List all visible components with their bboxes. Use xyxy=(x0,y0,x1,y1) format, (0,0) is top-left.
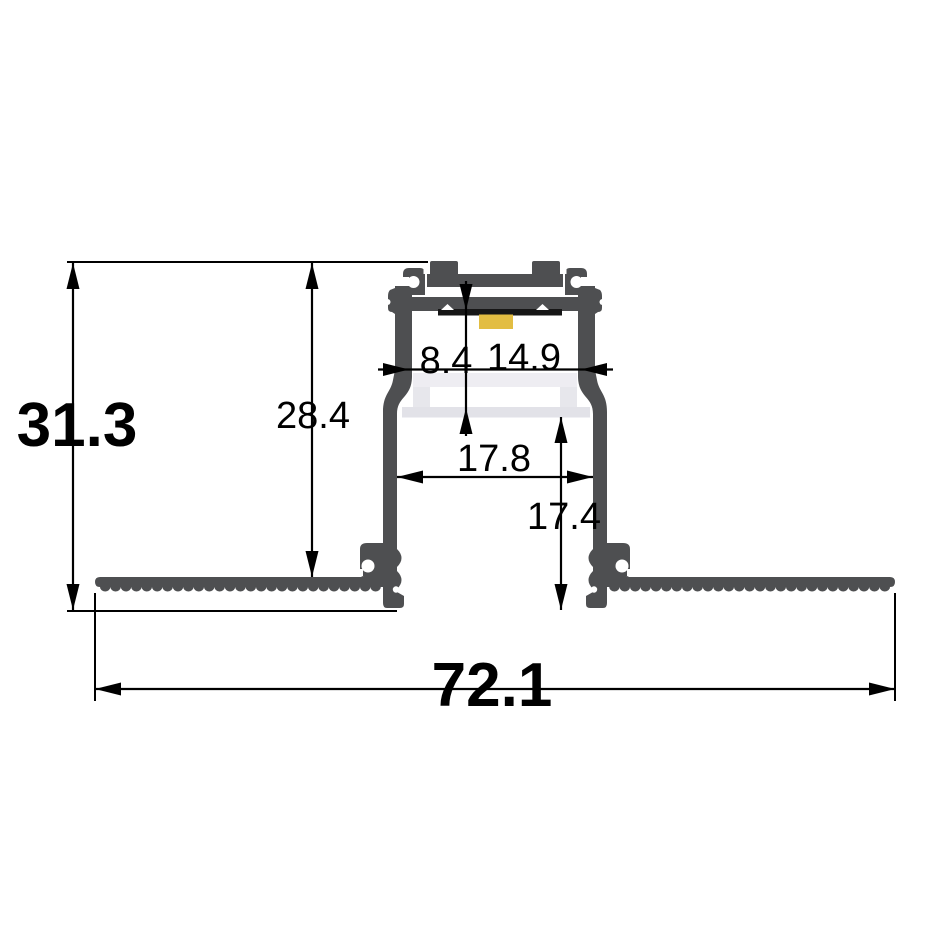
profile-ceiling-slab xyxy=(396,297,594,311)
foot-notch xyxy=(393,586,399,592)
dim-top-opening: 14.9 xyxy=(378,337,613,379)
flange-hook xyxy=(360,543,383,577)
dim-inner-width: 17.8 xyxy=(397,438,593,484)
dim-overall-width: 72.1 xyxy=(95,593,895,720)
outer-ear-notch xyxy=(385,299,391,305)
flange-hook-hole xyxy=(362,560,375,573)
dim-overall-height-label: 31.3 xyxy=(17,391,138,460)
dim-mounting-height-label: 28.4 xyxy=(276,395,350,437)
arrow-left xyxy=(95,683,121,696)
technical-drawing-canvas: 31.3 28.4 8.4 14.9 17.8 xyxy=(0,0,930,930)
dim-mounting-height: 28.4 xyxy=(276,263,350,577)
dim-inner-width-label: 17.8 xyxy=(457,438,531,480)
arrow-down xyxy=(555,584,568,610)
mounting-tab xyxy=(430,261,458,280)
arrow-right xyxy=(869,683,895,696)
flange-hook-opening xyxy=(356,569,363,576)
arrow-up xyxy=(67,263,80,289)
dim-overall-width-label: 72.1 xyxy=(432,651,553,720)
arrow-left xyxy=(397,471,423,484)
dim-recess-depth-label: 17.4 xyxy=(527,496,601,538)
arrow-down xyxy=(306,551,319,577)
diffuser-bottom-plate xyxy=(402,407,590,418)
dim-top-opening-label: 14.9 xyxy=(487,337,561,379)
dimensions: 31.3 28.4 8.4 14.9 17.8 xyxy=(17,262,895,720)
arrow-up xyxy=(306,263,319,289)
arrow-right xyxy=(567,471,593,484)
led-chip xyxy=(479,315,513,330)
dim-led-gap-label: 8.4 xyxy=(420,340,473,382)
profile-right-half xyxy=(532,261,895,608)
arrow-down xyxy=(67,584,80,610)
arrow-up xyxy=(555,417,568,443)
plaster-flange xyxy=(95,577,383,592)
corner-hook-slot xyxy=(401,277,409,286)
profile-cross-section-drawing: 31.3 28.4 8.4 14.9 17.8 xyxy=(0,0,930,930)
corner-hook-notch xyxy=(408,276,420,288)
lower-wall xyxy=(383,358,412,608)
